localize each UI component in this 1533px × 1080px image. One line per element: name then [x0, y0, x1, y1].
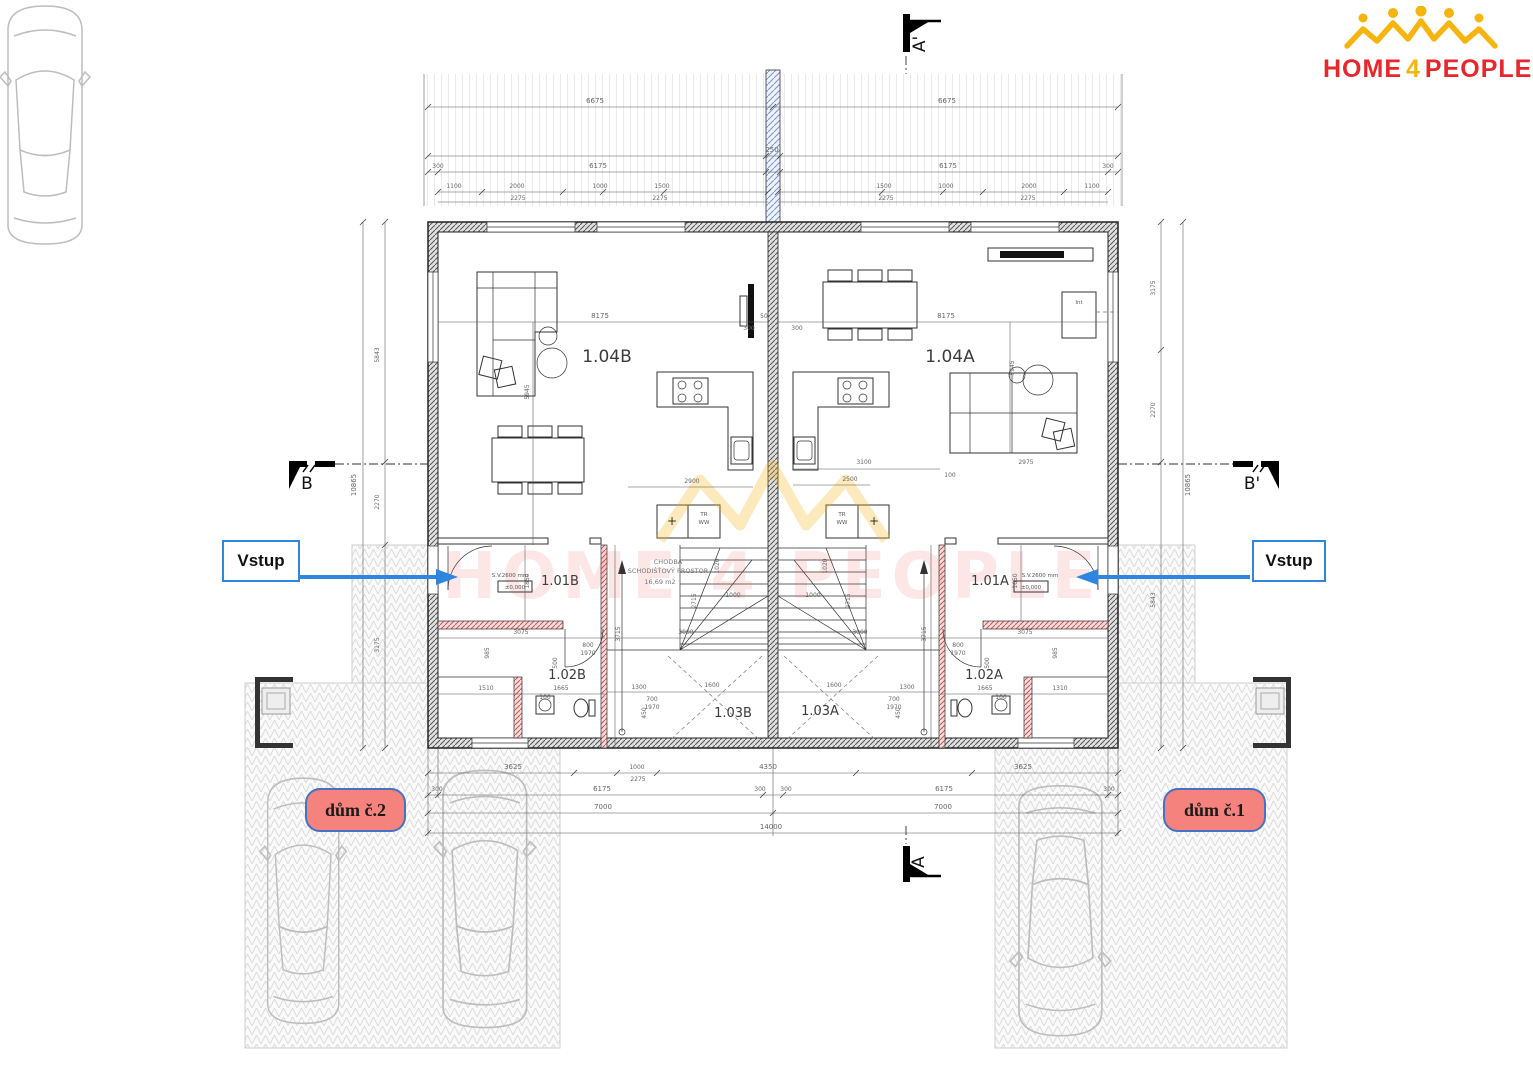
dim-label: 6675: [586, 97, 604, 105]
logo-word-people: PEOPLE: [1425, 55, 1532, 83]
dim-label: 5843: [374, 347, 381, 362]
dim-label: 300: [431, 786, 443, 793]
dim-label: 5945: [1009, 360, 1016, 375]
dim-label: 700: [646, 696, 658, 703]
dim-label: 100: [944, 472, 956, 479]
chodba-label: CHODBA: [654, 558, 683, 566]
dim-label: 1100: [1084, 183, 1099, 190]
dim-label: 3000: [678, 629, 693, 636]
dim-label: 1310: [1052, 685, 1067, 692]
dim-label: 1665: [977, 685, 992, 692]
section-marker-a-top: A': [903, 14, 941, 74]
logo-text: HOME4PEOPLE: [1323, 57, 1519, 82]
ww-label: WW: [699, 520, 710, 526]
dim-label: 3175: [1150, 280, 1157, 295]
tr-label: TR: [699, 512, 707, 518]
dim-label: 50: [760, 313, 768, 320]
int-label: Int: [1075, 300, 1083, 306]
dim-label: 1000: [592, 183, 607, 190]
room-label-stair-a: 1.03A: [801, 704, 839, 719]
room-label-bath-b: 1.02B: [548, 668, 586, 683]
dim-label: 2715: [691, 593, 698, 608]
room-label-hall-a: 1.01A: [971, 574, 1009, 589]
dim-label: 3075: [1017, 629, 1032, 636]
room-label-stair-b: 1.03B: [714, 706, 752, 721]
dim-label: 4350: [759, 763, 777, 771]
dim-label: 2270: [374, 494, 381, 509]
dim-label: 1020: [714, 558, 721, 573]
dim-label: 2275: [1020, 195, 1035, 202]
house-label-2: dům č.2: [305, 788, 406, 832]
floor-plan-page: HOME 4 PEOPLE 1.04B 1.04A 1.01B 1.01A 1.…: [0, 0, 1533, 1080]
entry-door-gap-right: [1108, 546, 1118, 594]
logo-word-home: HOME: [1323, 55, 1402, 83]
dim-label: 800: [952, 642, 964, 649]
dim-label: 3100: [856, 459, 871, 466]
dim-label: 300: [1102, 163, 1114, 170]
section-marker-a-bottom: A: [903, 826, 941, 882]
dim-label: 100: [995, 694, 1007, 701]
svg-text:A': A': [910, 36, 930, 52]
dim-label: 6175: [593, 785, 611, 793]
dim-label: 2275: [510, 195, 525, 202]
chodba-area: 16,69 m2: [644, 578, 675, 586]
svg-text:B: B: [301, 474, 313, 494]
dim-label: 14000: [760, 823, 782, 831]
dim-label: 6175: [935, 785, 953, 793]
dim-label: 450: [641, 707, 648, 719]
dim-label: 8175: [591, 312, 609, 320]
house-label-1: dům č.1: [1163, 788, 1266, 832]
dim-label: 3075: [513, 629, 528, 636]
dim-label: 1600: [704, 682, 719, 689]
dim-label: 2975: [1018, 459, 1033, 466]
dim-label: 2715: [845, 593, 852, 608]
dim-label: 700: [888, 696, 900, 703]
dim-label: 1970: [580, 650, 595, 657]
dim-label: 5843: [1150, 592, 1157, 607]
dim-label: 10865: [350, 474, 358, 496]
dim-label: 985: [1052, 647, 1059, 659]
dim-label: 5945: [524, 384, 531, 399]
dim-label: 1000: [805, 592, 820, 599]
dim-label: 10865: [1184, 474, 1192, 496]
plus-symbol: +: [869, 514, 879, 528]
dim-label: 6175: [939, 162, 957, 170]
dim-label: 300: [432, 163, 444, 170]
dim-label: 2000: [509, 183, 524, 190]
dim-label: 500: [552, 657, 559, 669]
dim-label: 2275: [652, 195, 667, 202]
svg-text:B': B': [1244, 474, 1260, 494]
dim-label: 7000: [594, 803, 612, 811]
dim-label: 1100: [446, 183, 461, 190]
room-label-hall-b: 1.01B: [541, 574, 579, 589]
dim-label: 1510: [478, 685, 493, 692]
dim-label: 3625: [504, 763, 522, 771]
dim-label: 100: [539, 694, 551, 701]
dim-label: 1500: [876, 183, 891, 190]
dim-label: 1850: [524, 573, 531, 588]
dim-label: 1000: [725, 592, 740, 599]
dim-label: 2900: [684, 478, 699, 485]
dim-label: 3175: [374, 637, 381, 652]
dim-label: 1600: [826, 682, 841, 689]
dim-label: 300: [780, 786, 792, 793]
dim-label: 2500: [842, 476, 857, 483]
dim-label: 8175: [937, 312, 955, 320]
dim-label: 1000: [629, 764, 644, 771]
dim-label: 300: [791, 325, 803, 332]
room-label-living-a: 1.04A: [925, 347, 975, 367]
dim-label: 6675: [938, 97, 956, 105]
tv: [1000, 251, 1064, 258]
ceiling-height-a: S.V.2600 mm: [1022, 573, 1059, 579]
logo: HOME4PEOPLE: [1323, 6, 1519, 82]
ww-label: WW: [837, 520, 848, 526]
dim-label: 6175: [589, 162, 607, 170]
dim-label: 300: [754, 786, 766, 793]
dim-label: 2275: [630, 776, 645, 783]
room-label-living-b: 1.04B: [582, 347, 632, 367]
logo-crown-icon: [1341, 6, 1501, 52]
dim-label: 1665: [553, 685, 568, 692]
logo-word-4: 4: [1402, 55, 1425, 83]
vstup-label-right: Vstup: [1252, 540, 1326, 582]
dim-label: 3715: [921, 626, 928, 641]
dim-label: 1500: [654, 183, 669, 190]
room-label-bath-a: 1.02A: [965, 668, 1003, 683]
ceiling-height-b: S.V.2600 mm: [492, 573, 529, 579]
dim-label: 300: [1103, 786, 1115, 793]
section-marker-b-right: B': [1118, 460, 1279, 494]
building: [428, 222, 1118, 748]
dim-label: 2275: [878, 195, 893, 202]
level-a: ±0,000: [1021, 585, 1042, 591]
level-b: ±0,000: [505, 585, 526, 591]
dim-label: 7000: [934, 803, 952, 811]
svg-text:A: A: [909, 856, 929, 868]
dim-label: 3625: [1014, 763, 1032, 771]
dim-label: 1970: [950, 650, 965, 657]
dim-label: 1300: [631, 684, 646, 691]
dim-label: 500: [984, 657, 991, 669]
dim-label: 3000: [852, 629, 867, 636]
section-marker-b-left: B: [289, 460, 428, 494]
vstup-label-left: Vstup: [222, 540, 300, 582]
party-wall: [768, 232, 778, 738]
dim-label: 1000: [938, 183, 953, 190]
dim-label: 300: [743, 325, 755, 332]
dim-label: 1020: [822, 558, 829, 573]
dim-label: 985: [484, 647, 491, 659]
dim-label: 2000: [1021, 183, 1036, 190]
dim-label: 450: [895, 707, 902, 719]
dim-label: 800: [582, 642, 594, 649]
plus-symbol: +: [667, 514, 677, 528]
dim-label: 3715: [615, 626, 622, 641]
dim-label: 250: [765, 146, 778, 154]
dim-label: 1650: [1012, 573, 1019, 588]
dim-label: 1300: [899, 684, 914, 691]
chodba-label2: SCHODIŠŤOVÝ PROSTOR: [628, 566, 709, 575]
dim-label: 2270: [1150, 402, 1157, 417]
tr-label: TR: [837, 512, 845, 518]
